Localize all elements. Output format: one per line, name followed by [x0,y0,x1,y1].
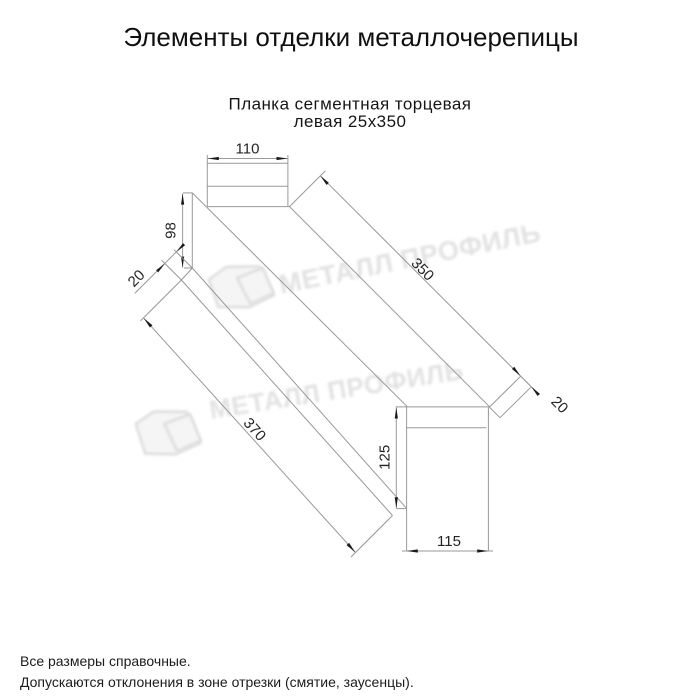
svg-text:125: 125 [376,445,393,470]
svg-text:Планка сегментная торцевая: Планка сегментная торцевая [229,95,472,114]
svg-text:Допускаются отклонения в зоне: Допускаются отклонения в зоне отрезки (с… [20,674,414,690]
svg-text:98: 98 [162,222,179,239]
svg-text:Элементы отделки металлочерепи: Элементы отделки металлочерепицы [123,22,578,52]
svg-text:110: 110 [236,141,260,158]
svg-text:115: 115 [437,533,461,550]
svg-text:левая 25х350: левая 25х350 [294,112,407,131]
svg-text:Все размеры справочные.: Все размеры справочные. [20,653,191,669]
